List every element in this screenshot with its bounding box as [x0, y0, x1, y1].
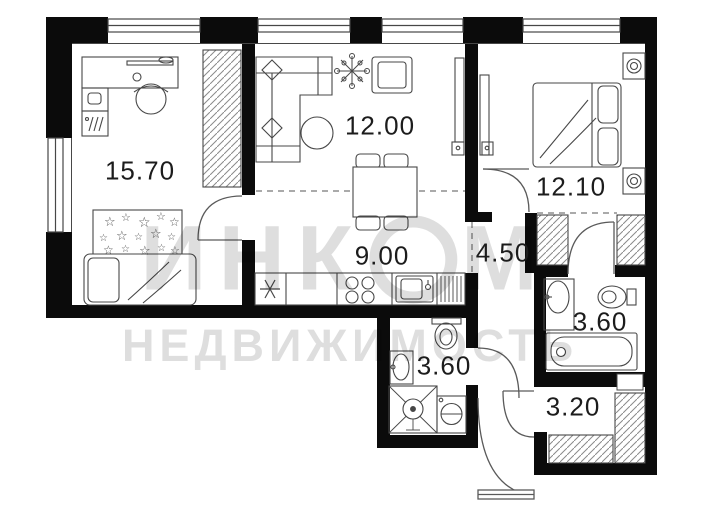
bed-single [84, 254, 196, 305]
svg-text:☆: ☆ [134, 232, 143, 243]
plant [335, 54, 370, 89]
svg-text:☆: ☆ [116, 229, 128, 244]
nightstand-bottom [623, 168, 645, 194]
svg-text:☆: ☆ [170, 244, 180, 257]
desk [82, 57, 178, 88]
svg-text:☆: ☆ [121, 244, 130, 255]
dining-table-set [353, 154, 417, 230]
svg-text:☆: ☆ [139, 244, 151, 259]
kitchen-counter [255, 273, 465, 305]
svg-text:☆: ☆ [157, 243, 166, 254]
label-living-room: 12.00 [345, 111, 415, 142]
wall-shaft-notch [617, 374, 643, 390]
armchair [372, 57, 412, 93]
door-bedroom-right [483, 169, 529, 212]
storage-wardrobe-bottom [549, 435, 613, 463]
window-top-2 [258, 19, 350, 32]
svg-text:☆: ☆ [156, 210, 166, 223]
bathtub [546, 333, 637, 370]
svg-text:☆: ☆ [169, 215, 180, 229]
storage-wardrobe-right [615, 393, 645, 463]
svg-text:☆: ☆ [150, 227, 162, 242]
svg-text:☆: ☆ [103, 243, 114, 257]
living-room-furniture [256, 54, 464, 231]
floor-plan: ☆☆ ☆☆ ☆☆ ☆☆ ☆☆ ☆☆ ☆☆ ☆ [0, 0, 701, 521]
washing-machine [437, 396, 466, 433]
toilet-middle [432, 318, 461, 349]
label-hallway: 4.50 [476, 238, 531, 269]
shelf-unit [82, 88, 108, 136]
washbasin-middle [390, 351, 413, 384]
svg-text:☆: ☆ [138, 215, 151, 231]
nightstand-top [623, 53, 645, 79]
shower-tray [389, 386, 437, 433]
door-closet-bathroom [568, 222, 614, 274]
wardrobe-tall [203, 50, 241, 187]
label-storage-room: 3.20 [546, 392, 601, 423]
tv-stand-bedroom [480, 75, 493, 155]
label-bathroom-right: 3.60 [573, 307, 628, 338]
tv-stand-living [452, 58, 464, 155]
svg-text:☆: ☆ [167, 232, 176, 243]
label-bedroom-left: 15.70 [105, 156, 175, 187]
door-room-left [198, 196, 242, 240]
window-top-4 [523, 19, 620, 32]
closet-wardrobe-left [537, 215, 568, 265]
svg-text:☆: ☆ [104, 215, 116, 230]
sofa-corner [256, 57, 332, 162]
floor-plan-drawing: ☆☆ ☆☆ ☆☆ ☆☆ ☆☆ ☆☆ ☆☆ ☆ [0, 0, 701, 521]
svg-text:☆: ☆ [121, 211, 131, 224]
coffee-table [301, 117, 333, 149]
label-bedroom-right: 12.10 [536, 172, 606, 203]
toilet-right [598, 286, 636, 308]
window-top-3 [382, 19, 463, 32]
closet-wardrobe-right [617, 215, 645, 265]
washbasin-right [544, 279, 574, 330]
double-bed [533, 83, 621, 167]
label-kitchen: 9.00 [355, 241, 410, 272]
label-bathroom-middle: 3.60 [417, 351, 472, 382]
window-top-1 [108, 19, 200, 32]
window-left [48, 138, 63, 232]
